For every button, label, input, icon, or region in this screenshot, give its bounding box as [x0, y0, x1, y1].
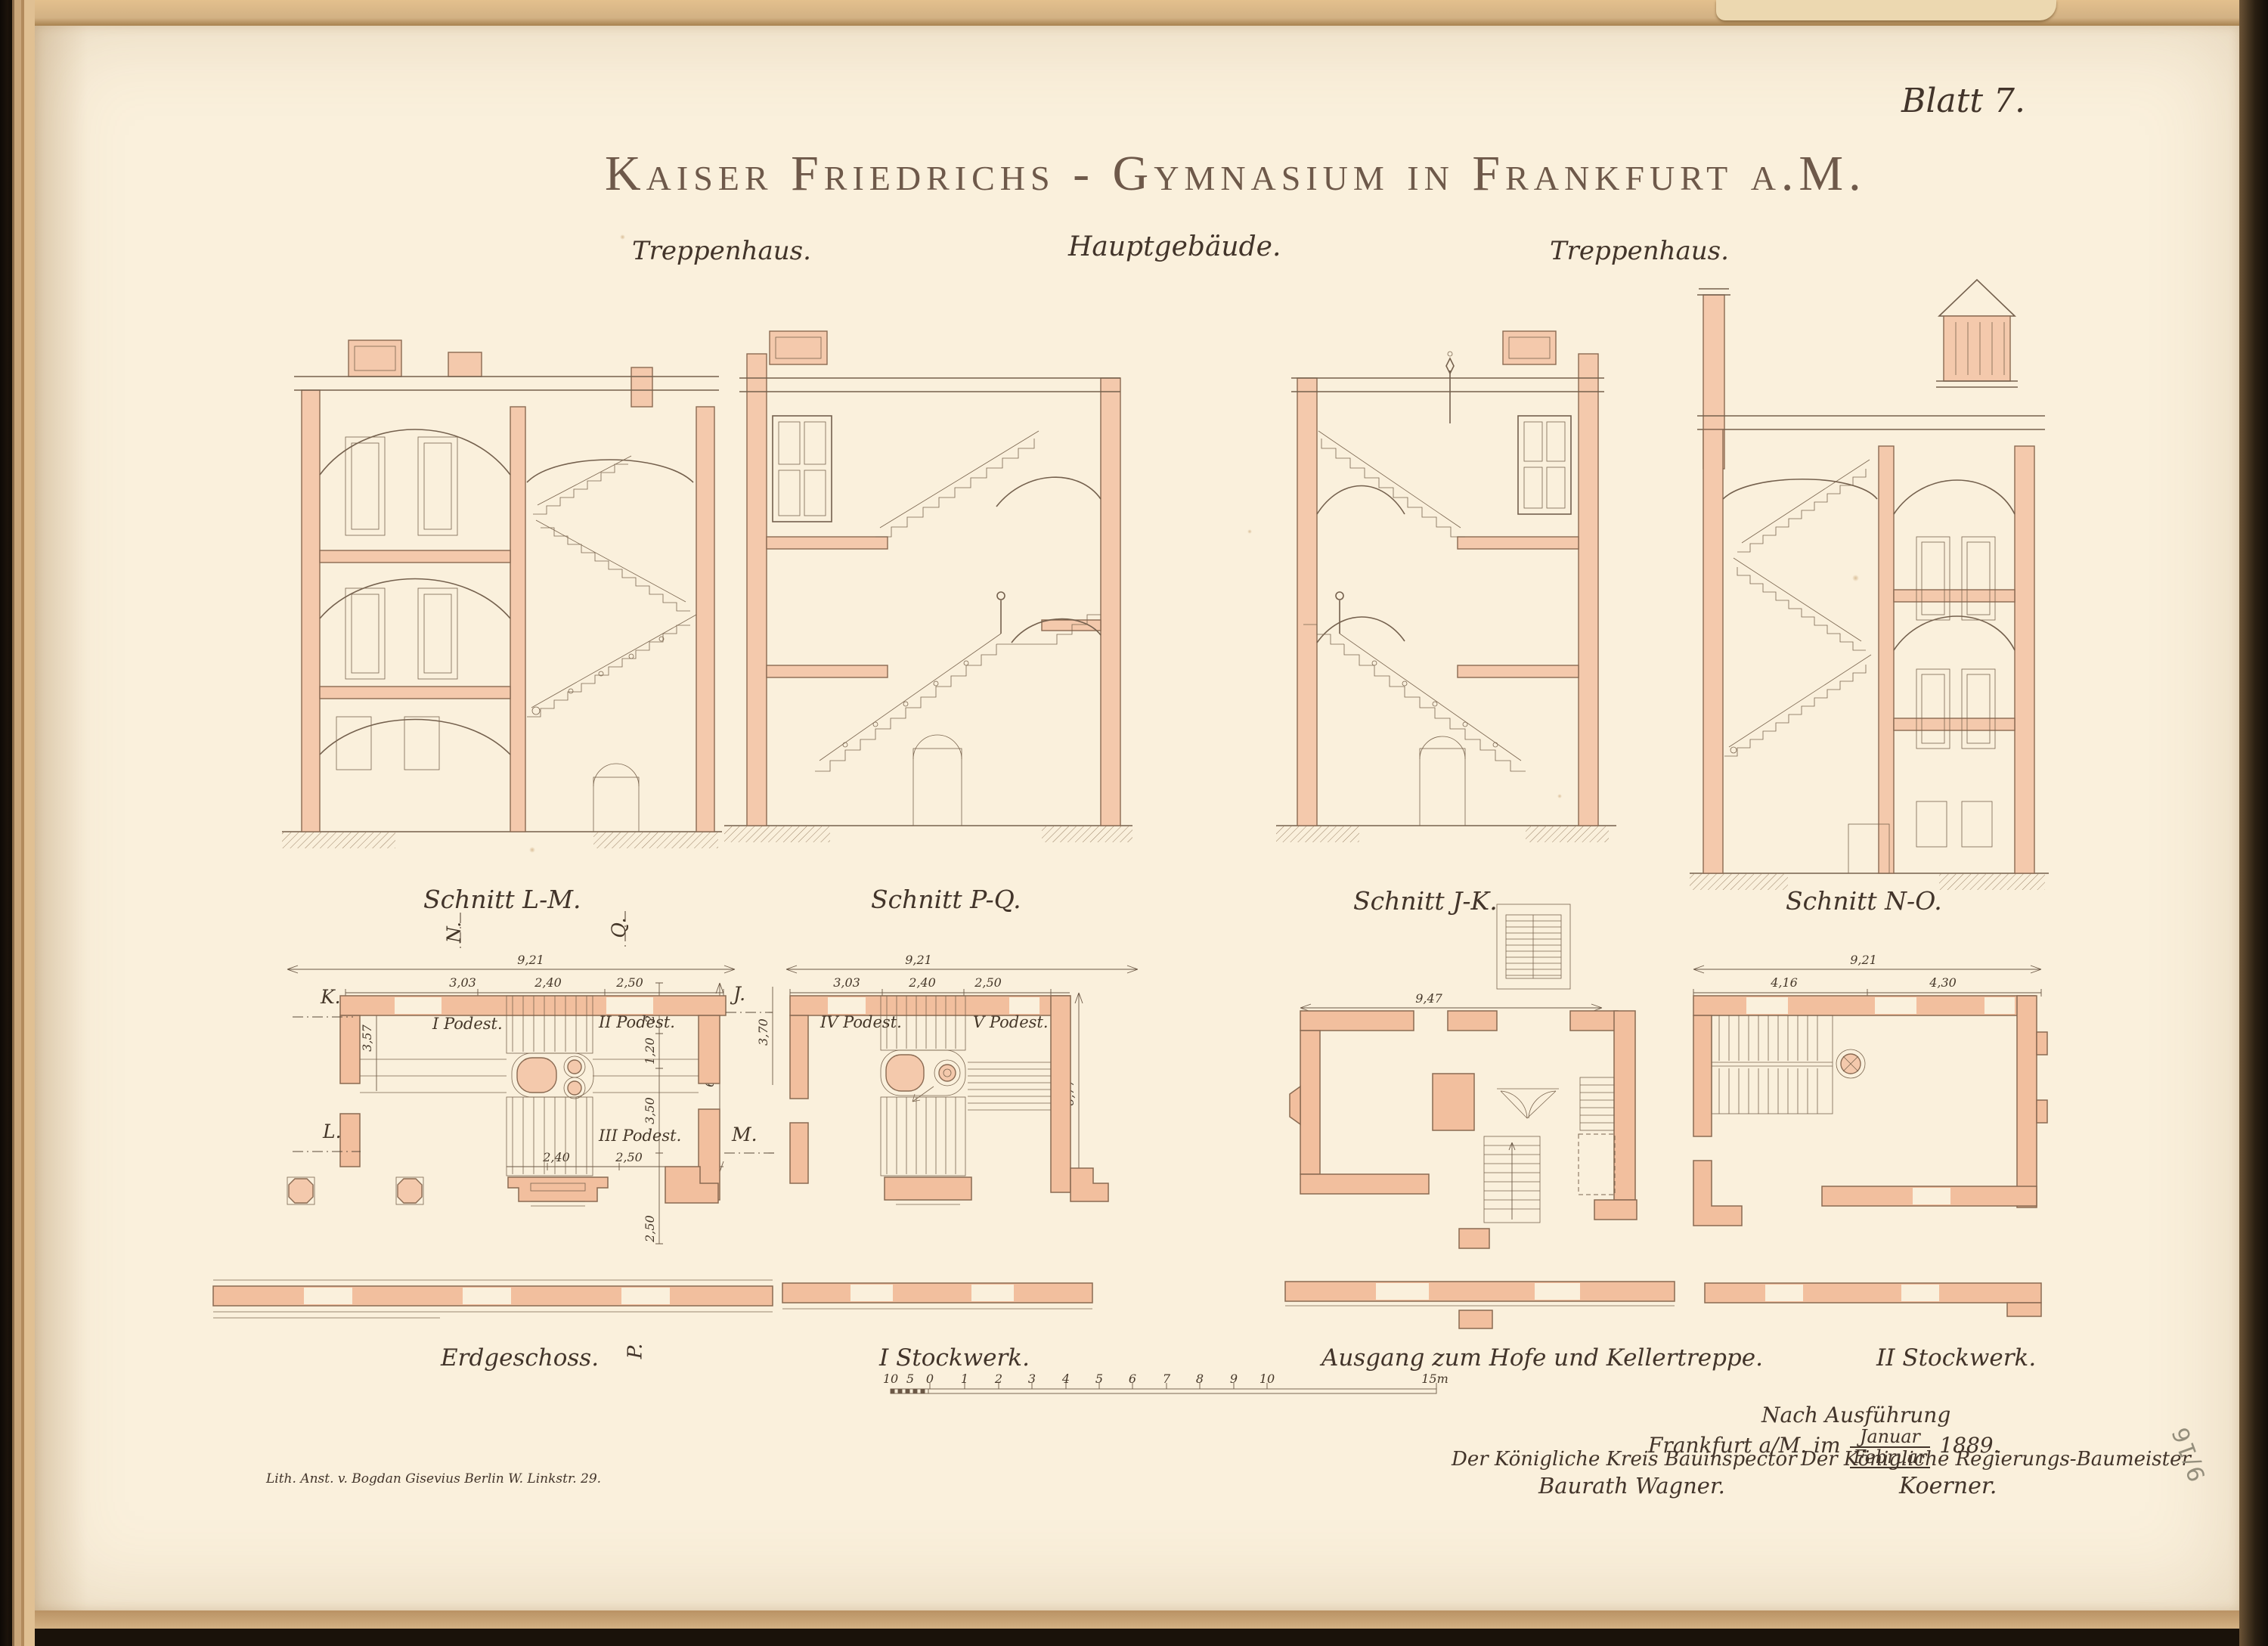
entry-porch — [508, 1177, 608, 1206]
attribution-left-title: Der Königliche Kreis Bauinspector — [1452, 1448, 1797, 1471]
dim-label: 9,21 — [1850, 953, 1877, 967]
newel-cluster — [881, 1050, 965, 1102]
dimensions: 9,21 3,03 2,40 2,50 6,77 — [786, 953, 1138, 1198]
dim-label: 4,30 — [1929, 975, 1957, 990]
corridor-wall-4 — [1705, 1274, 2041, 1319]
section-drawing-lm — [276, 293, 726, 891]
scale-bar: 10 5 0 1 2 3 4 5 6 7 8 9 10 15m — [869, 1357, 1459, 1410]
marker-j: J. — [730, 983, 745, 1005]
sheet-number: Blatt 7. — [1901, 82, 2025, 120]
walls — [1703, 429, 2034, 873]
scale-label: 10 — [883, 1372, 898, 1386]
podest-label: II Podest. — [598, 1013, 675, 1031]
caption-schnitt-lm: Schnitt L-M. — [423, 885, 581, 914]
cornice — [1697, 416, 2045, 429]
corridor-wall-2 — [782, 1274, 1092, 1319]
bottom-page-edge — [35, 1610, 2239, 1629]
book-photograph: Blatt 7. Kaiser Friedrichs - Gymnasium i… — [0, 0, 2268, 1646]
marker-q: Q. — [608, 917, 630, 938]
dim-label: 2,50 — [615, 975, 643, 990]
plan-ausgang: 9,47 — [1285, 896, 1709, 1266]
scale-ticks: 10 5 0 1 2 3 4 5 6 7 8 9 10 15m — [883, 1372, 1448, 1386]
label-treppenhaus-left: Treppenhaus. — [632, 236, 811, 266]
ground — [1276, 826, 1616, 842]
newel — [1836, 1049, 1865, 1078]
podest-label: III Podest. — [598, 1127, 681, 1145]
walls — [1693, 996, 2047, 1226]
marker-p: P. — [624, 1344, 646, 1359]
stair-flights — [1712, 1015, 1833, 1114]
doors — [1497, 1089, 1559, 1118]
cornice-parapet — [1291, 331, 1604, 392]
plan-stockwerk1: 9,21 3,03 2,40 2,50 6,77 — [782, 911, 1160, 1266]
section-drawing-no — [1690, 227, 2053, 892]
lithographer-imprint: Lith. Anst. v. Bogdan Gisevius Berlin W.… — [266, 1471, 601, 1486]
page-edges — [12, 0, 35, 1646]
windows — [1916, 537, 1995, 847]
foxing-spot — [1247, 529, 1252, 534]
scale-label: 15m — [1421, 1372, 1448, 1386]
right-gutter-shadow — [2239, 0, 2268, 1646]
torn-paper-edge — [1716, 0, 2056, 20]
corridor-wall-3 — [1285, 1274, 1675, 1331]
arches — [320, 429, 693, 755]
scale-label: 2 — [994, 1372, 1002, 1386]
dim-label: 1,20 — [643, 1037, 657, 1065]
dim-label: 2,50 — [615, 1150, 643, 1164]
podest-label: I Podest. — [432, 1015, 503, 1033]
roof-aedicule — [1936, 280, 2018, 387]
basement-door — [1420, 736, 1465, 826]
marker-l: L. — [322, 1121, 342, 1142]
door — [773, 416, 832, 522]
arches — [1723, 479, 2015, 650]
plan-stockwerk2: 9,21 4,16 4,30 — [1686, 911, 2049, 1266]
scale-label: 5 — [906, 1372, 914, 1386]
cellar-grate — [1497, 904, 1570, 989]
page-title: Kaiser Friedrichs - Gymnasium in Frankfu… — [605, 145, 1678, 203]
windows-doors — [336, 437, 639, 832]
columns — [287, 1177, 423, 1204]
podest-label: IV Podest. — [820, 1013, 902, 1031]
attribution-right-name: Koerner. — [1899, 1473, 1997, 1499]
cornice-parapet — [294, 340, 719, 407]
dim-label: 3,03 — [833, 975, 860, 990]
section-trace-markers: N. Q. — [443, 911, 630, 950]
dimensions: 9,47 — [1300, 991, 1602, 1012]
caption-erdgeschoss: Erdgeschoss. — [441, 1344, 599, 1372]
attribution-month-top: Januar — [1850, 1427, 1931, 1448]
dim-label: 2,40 — [534, 975, 562, 990]
caption-stockwerk2: II Stockwerk. — [1876, 1344, 2036, 1372]
cornice-parapet — [739, 331, 1120, 392]
podest-label: V Podest. — [973, 1013, 1049, 1031]
bottom-shadow — [35, 1629, 2239, 1646]
dim-label: 3,57 — [360, 1024, 374, 1051]
dim-label: 3,03 — [449, 975, 476, 990]
ground — [724, 826, 1132, 842]
sheet-curl-shadow — [35, 26, 88, 1610]
marker-n: N. — [443, 922, 465, 944]
section-drawing-pq — [724, 287, 1136, 892]
staircase — [815, 431, 1101, 771]
plan-erdgeschoss: N. Q. 9,21 3,03 2,40 2,50 2,50 1,20 3,50… — [281, 911, 784, 1266]
staircase — [1303, 431, 1526, 771]
caption-schnitt-pq: Schnitt P-Q. — [871, 885, 1021, 914]
dim-label: 4,16 — [1770, 975, 1798, 990]
label-hauptgebaeude: Hauptgebäude. — [1068, 231, 1281, 262]
arches — [996, 477, 1101, 643]
section-drawing-jk — [1276, 287, 1620, 892]
staircase — [527, 456, 696, 717]
attribution-right-title: Der Königliche Regierungs-Baumeister — [1801, 1448, 2191, 1471]
staircase — [1724, 460, 1871, 756]
walls — [302, 390, 714, 832]
dim-label: 2,40 — [908, 975, 936, 990]
marker-m: M. — [731, 1124, 758, 1145]
walls — [1297, 354, 1598, 826]
door — [1518, 416, 1571, 514]
attribution-line1: Nach Ausführung — [1761, 1403, 1950, 1427]
dim-label: 3,50 — [643, 1097, 657, 1124]
arches — [1317, 486, 1405, 643]
dim-label: 9,21 — [905, 953, 932, 967]
scale-label: 4 — [1061, 1372, 1070, 1386]
ground — [282, 832, 722, 848]
finial — [1446, 352, 1454, 423]
dim-label: 9,47 — [1415, 991, 1442, 1006]
entry-porch — [885, 1177, 971, 1204]
foxing-spot — [620, 234, 625, 240]
dim-label: 2,50 — [974, 975, 1002, 990]
corridor-wall-1 — [213, 1274, 773, 1327]
attribution-left-name: Baurath Wagner. — [1538, 1473, 1725, 1499]
basement-door — [913, 735, 962, 826]
walls — [747, 354, 1120, 826]
marker-k: K. — [320, 986, 341, 1008]
book-binding — [0, 0, 12, 1646]
dim-label: 2,50 — [643, 1215, 657, 1243]
dimensions: 9,21 4,16 4,30 — [1693, 953, 2041, 997]
newel-cluster — [512, 1053, 593, 1099]
walls — [1290, 1011, 1637, 1248]
dim-label: 3,70 — [756, 1018, 770, 1046]
dim-label: 9,21 — [517, 953, 544, 967]
